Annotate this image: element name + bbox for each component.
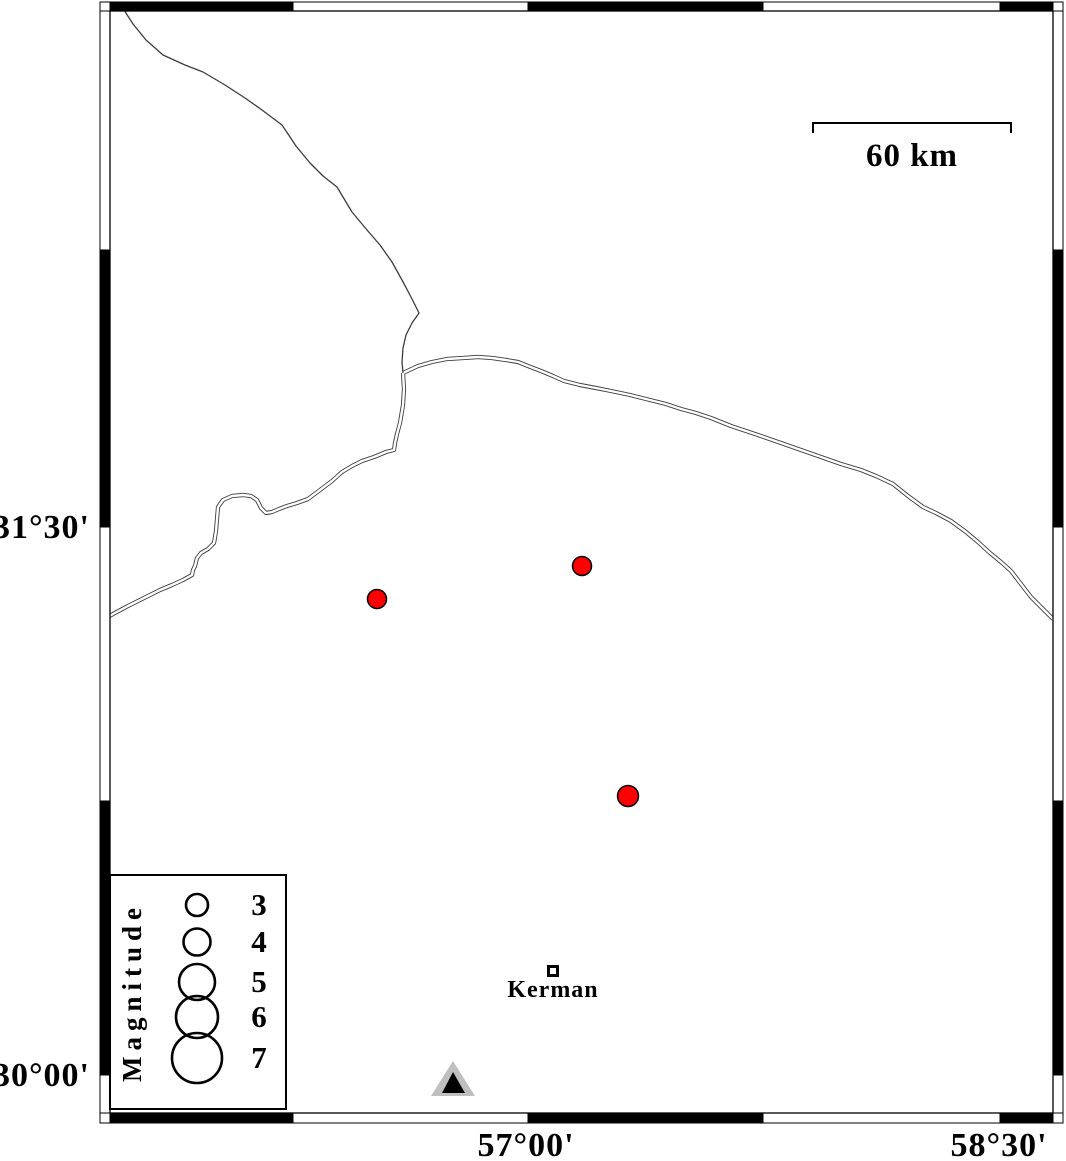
- map-canvas: 31°30' 30°00' 57°00' 58°30' 60 km Kerman…: [0, 0, 1066, 1161]
- frame-segment-bottom: [528, 1113, 763, 1123]
- frame-segment-bottom: [100, 1113, 110, 1123]
- frame-segment-bottom: [763, 1113, 1000, 1123]
- frame-segment-bottom: [110, 1113, 293, 1123]
- frame-segment-left: [100, 11, 110, 250]
- magnitude-legend: Magnitude 34567: [110, 875, 286, 1109]
- earthquake-marker: [618, 786, 639, 807]
- fault-lines-layer: [108, 10, 1053, 619]
- frame-segment-top: [293, 2, 528, 11]
- earthquake-marker: [368, 590, 387, 609]
- frame-segment-top: [100, 2, 110, 11]
- axis-label-longitude-right: 58°30': [950, 1127, 1047, 1161]
- frame-segment-left: [100, 250, 110, 527]
- frame-segment-top: [1000, 2, 1053, 11]
- legend-title: Magnitude: [117, 902, 147, 1082]
- frame-segment-right: [1053, 250, 1063, 527]
- frame-segment-top: [1053, 2, 1063, 11]
- legend-magnitude-label: 7: [251, 1040, 267, 1075]
- legend-magnitude-label: 5: [251, 964, 267, 999]
- axis-label-latitude-lower: 30°00': [0, 1057, 90, 1094]
- frame-segment-bottom: [1053, 1113, 1063, 1123]
- fault-line: [124, 10, 419, 373]
- city-square-marker: [549, 967, 558, 976]
- fault-line-double-outer: [403, 357, 1053, 619]
- frame-segment-left: [100, 801, 110, 1075]
- fault-line-double-core: [403, 357, 1053, 619]
- city-label: Kerman: [507, 977, 598, 1003]
- frame-segment-top: [110, 2, 293, 11]
- fault-line-double-outer: [108, 373, 404, 617]
- seismicity-map-figure: 31°30' 30°00' 57°00' 58°30' 60 km Kerman…: [0, 0, 1066, 1161]
- frame-segment-right: [1053, 11, 1063, 250]
- frame-segment-right: [1053, 1075, 1063, 1113]
- legend-magnitude-label: 4: [251, 924, 267, 959]
- city-marker-group: Kerman: [507, 967, 598, 1004]
- frame-segment-left: [100, 1075, 110, 1113]
- frame-segment-bottom: [293, 1113, 528, 1123]
- frame-segment-right: [1053, 801, 1063, 1075]
- frame-segment-top: [528, 2, 763, 11]
- frame-segment-bottom: [1000, 1113, 1053, 1123]
- legend-magnitude-label: 3: [251, 887, 267, 922]
- axis-label-longitude-left: 57°00': [477, 1127, 574, 1161]
- earthquake-marker: [573, 557, 592, 576]
- fault-line-double-core: [108, 373, 404, 617]
- legend-magnitude-label: 6: [251, 999, 267, 1034]
- station-triangle-marker: [431, 1061, 475, 1096]
- frame-segment-left: [100, 527, 110, 801]
- earthquake-markers-layer: [368, 557, 639, 807]
- scale-bar-label: 60 km: [866, 138, 958, 174]
- scale-bar: 60 km: [813, 123, 1011, 174]
- frame-segment-right: [1053, 527, 1063, 801]
- frame-segment-top: [763, 2, 1000, 11]
- scale-bar-bracket: [813, 123, 1011, 133]
- axis-label-latitude-upper: 31°30': [0, 509, 90, 546]
